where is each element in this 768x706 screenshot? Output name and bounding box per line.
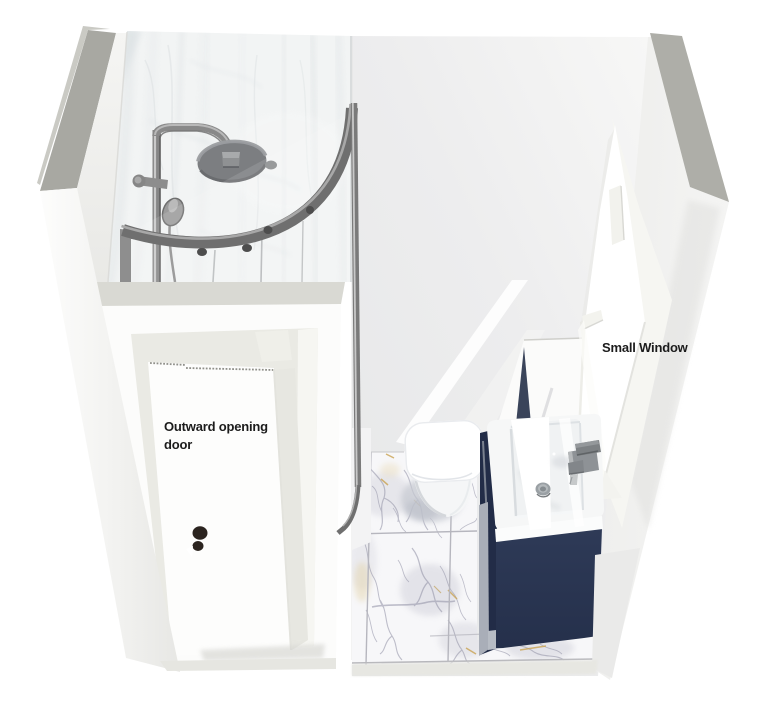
svg-text:door: door (164, 437, 192, 452)
svg-text:Outward opening: Outward opening (164, 419, 268, 434)
svg-text:Small Window: Small Window (602, 340, 689, 355)
